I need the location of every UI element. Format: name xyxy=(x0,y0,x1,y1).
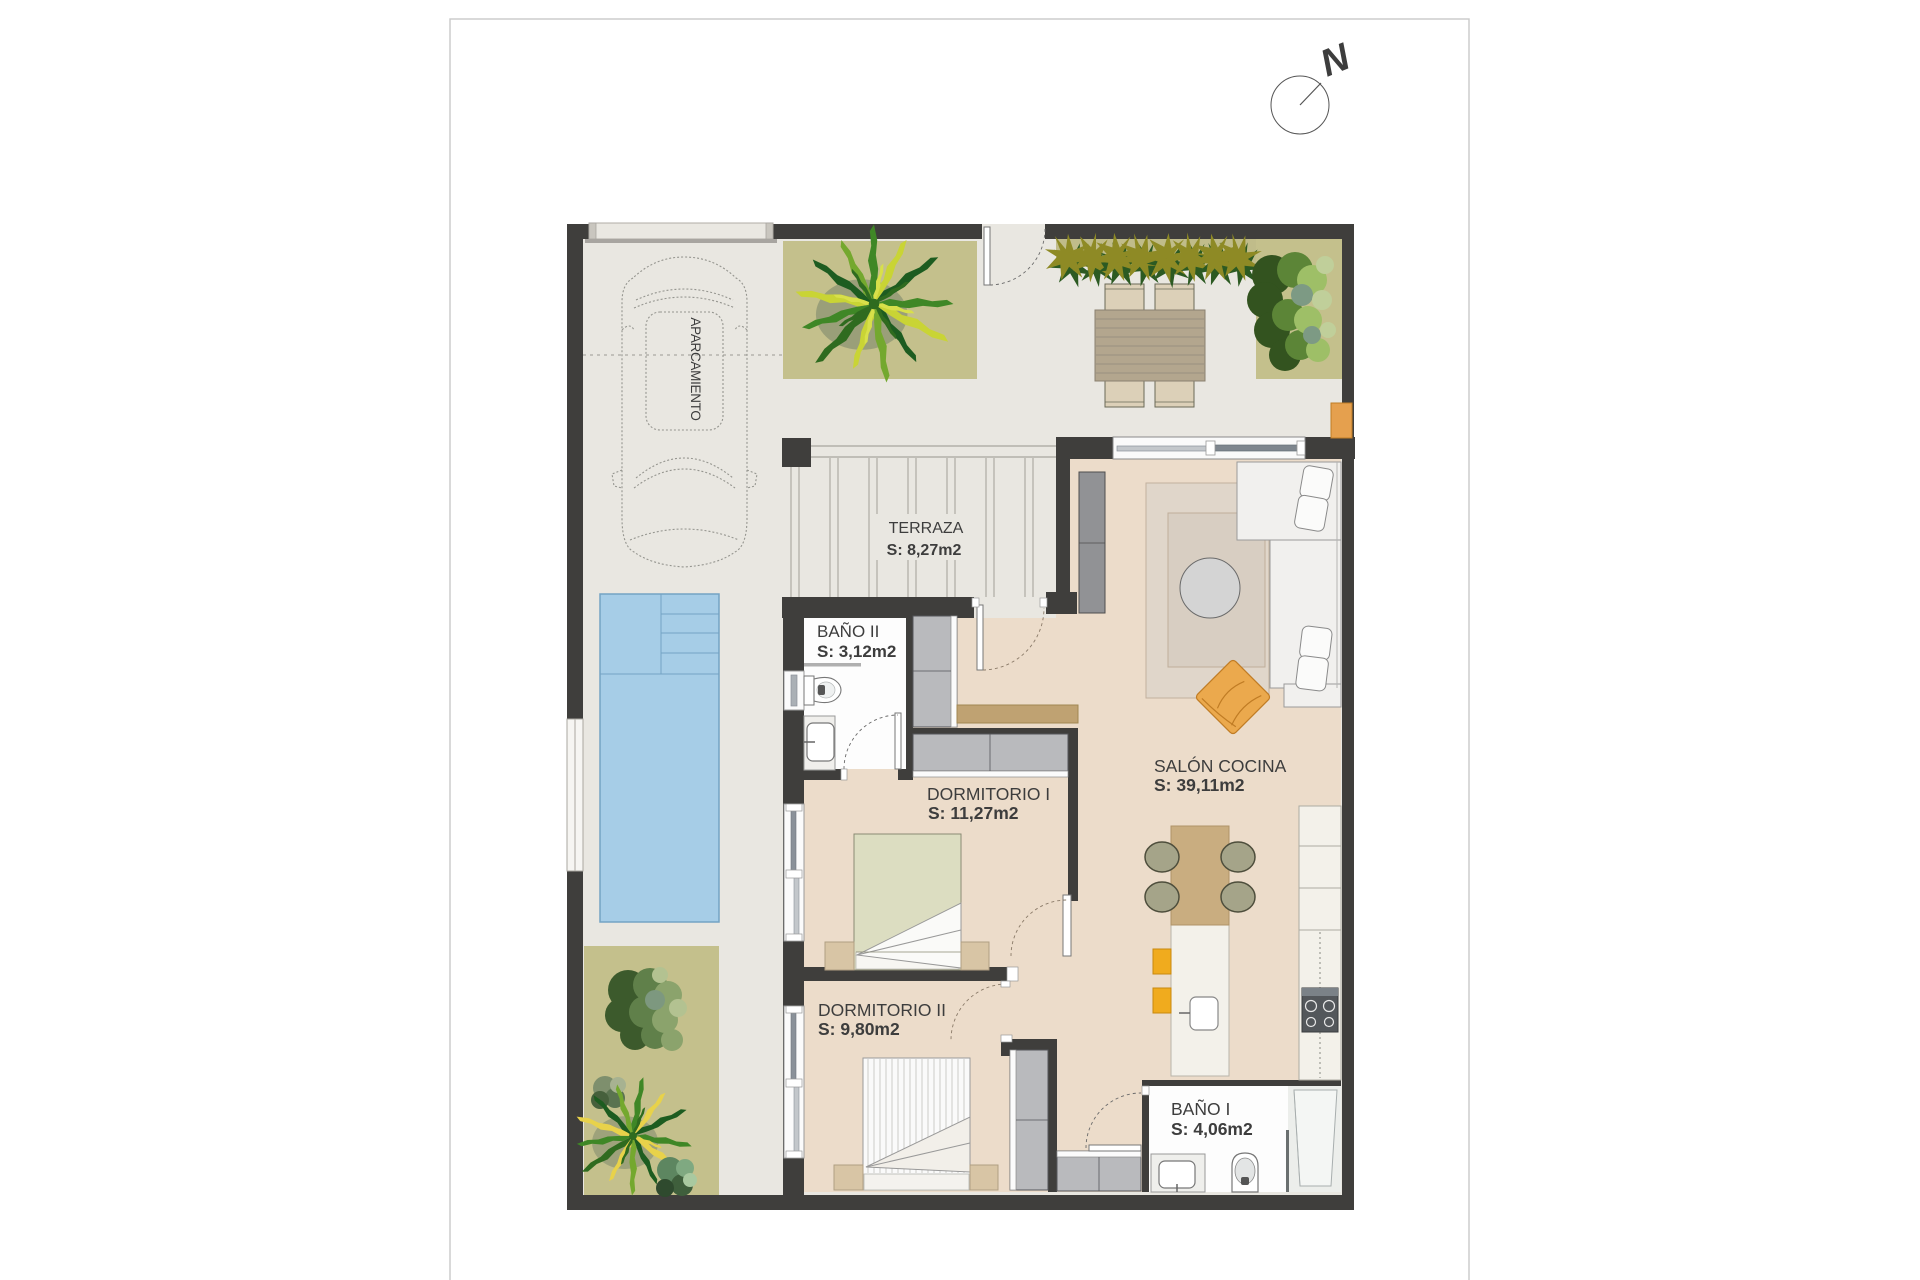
svg-text:BAÑO II: BAÑO II xyxy=(817,622,879,641)
svg-text:S: 4,06m2: S: 4,06m2 xyxy=(1171,1119,1253,1139)
svg-text:N: N xyxy=(1315,36,1358,86)
svg-text:TERRAZA: TERRAZA xyxy=(889,520,964,537)
svg-text:S: 3,12m2: S: 3,12m2 xyxy=(817,642,896,661)
svg-text:S: 11,27m2: S: 11,27m2 xyxy=(928,803,1019,823)
svg-text:DORMITORIO II: DORMITORIO II xyxy=(818,1000,946,1020)
svg-text:APARCAMIENTO: APARCAMIENTO xyxy=(688,317,703,420)
svg-text:DORMITORIO I: DORMITORIO I xyxy=(927,784,1050,804)
svg-text:BAÑO I: BAÑO I xyxy=(1171,1098,1230,1119)
svg-text:S: 39,11m2: S: 39,11m2 xyxy=(1154,775,1245,795)
svg-text:S: 8,27m2: S: 8,27m2 xyxy=(887,542,962,559)
svg-text:S: 9,80m2: S: 9,80m2 xyxy=(818,1019,900,1039)
svg-text:SALÓN COCINA: SALÓN COCINA xyxy=(1154,755,1287,776)
